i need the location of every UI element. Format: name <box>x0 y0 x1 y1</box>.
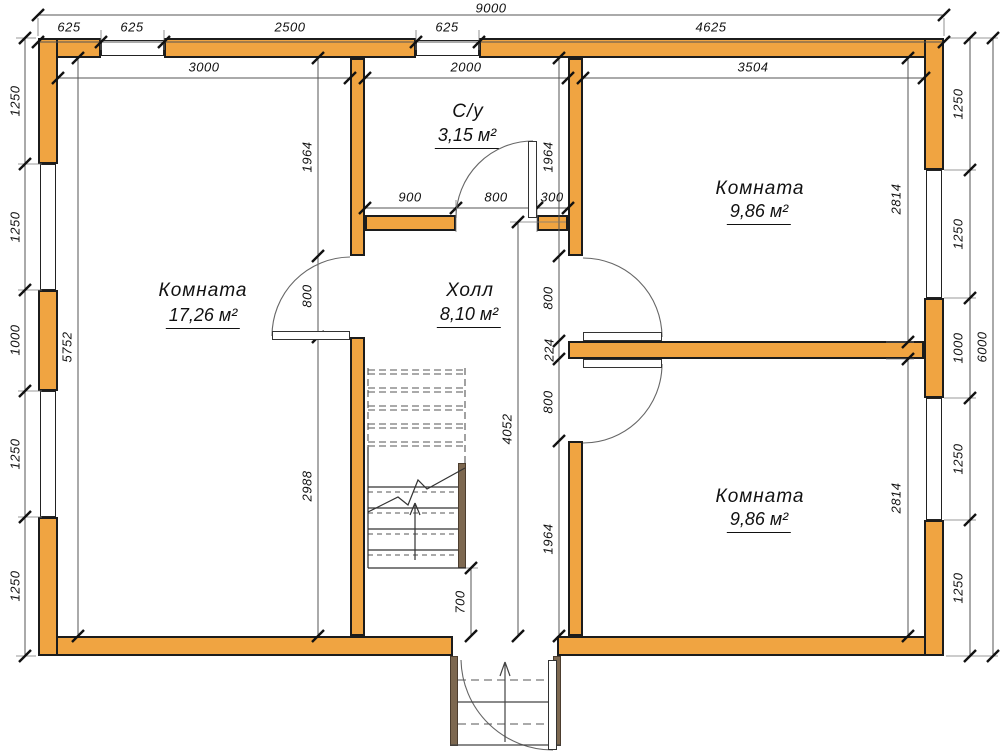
door-leaf-entrance <box>548 660 557 750</box>
door-arc-bottom-right-room <box>583 364 662 443</box>
dim-room-width: 3000 <box>189 60 220 75</box>
dim-rpart-chain: 800 <box>541 390 556 413</box>
dim-right-chain: 1250 <box>951 219 966 250</box>
plan-linework <box>0 0 1000 753</box>
dim-rpart-chain: 800 <box>541 286 556 309</box>
dim-top-chain: 625 <box>57 20 80 35</box>
room-name-hall: Холл <box>446 280 494 302</box>
room-area-left: 17,26 м² <box>166 305 240 329</box>
dim-top-chain: 2500 <box>275 20 306 35</box>
dim-left-chain: 1250 <box>8 86 23 117</box>
dim-rpart-chain: 1964 <box>541 142 556 173</box>
dim-left-chain: 1250 <box>8 212 23 243</box>
dim-stair-landing: 700 <box>453 590 468 613</box>
dim-left-chain: 1000 <box>8 325 23 356</box>
dim-top-chain: 4625 <box>696 20 727 35</box>
room-area-bottom-right: 9,86 м² <box>727 509 791 533</box>
dim-total-height: 6000 <box>975 332 990 363</box>
dim-lpart-chain: 1964 <box>300 142 315 173</box>
dim-total-width: 9000 <box>476 1 507 16</box>
dim-left-chain: 1250 <box>8 571 23 602</box>
dim-bathroom-chain: 900 <box>398 190 421 205</box>
door-arc-entrance <box>461 660 553 750</box>
dimension-lines <box>25 15 993 656</box>
door-arcs <box>272 141 662 750</box>
dim-top-chain: 625 <box>120 20 143 35</box>
dim-right-chain: 1250 <box>951 444 966 475</box>
dim-left-chain: 1250 <box>8 439 23 470</box>
porch-steps <box>450 662 561 745</box>
door-arc-bathroom <box>456 141 533 218</box>
dim-room-width: 2000 <box>451 60 482 75</box>
extension-lines <box>16 18 998 656</box>
room-name-bathroom: С/у <box>452 101 484 123</box>
door-leaf-top-right-room <box>583 332 662 341</box>
door-arc-top-right-room <box>583 258 662 337</box>
dim-right-room-height: 2814 <box>889 483 904 514</box>
dim-right-chain: 1250 <box>951 89 966 120</box>
dim-right-room-height: 2814 <box>889 184 904 215</box>
dim-right-chain: 1000 <box>951 333 966 364</box>
dim-rpart-chain: 224 <box>542 338 557 361</box>
room-name-left: Комната <box>159 280 248 302</box>
dim-rpart-chain: 1964 <box>541 524 556 555</box>
dim-hall-height: 4052 <box>500 414 515 445</box>
staircase <box>368 368 466 568</box>
dim-bathroom-chain: 800 <box>484 190 507 205</box>
dim-lpart-chain: 800 <box>300 284 315 307</box>
dim-right-chain: 1250 <box>951 573 966 604</box>
door-leaf-bottom-right-room <box>583 359 662 368</box>
door-leaf-left-room <box>272 331 350 340</box>
room-name-top-right: Комната <box>716 178 805 200</box>
floor-plan-canvas: Комната 17,26 м² Холл 8,10 м² С/у 3,15 м… <box>0 0 1000 753</box>
dim-lpart-chain: 2988 <box>300 471 315 502</box>
room-area-hall: 8,10 м² <box>437 304 501 328</box>
dim-room-width: 3504 <box>738 60 769 75</box>
dim-bathroom-chain: 300 <box>540 190 563 205</box>
room-name-bottom-right: Комната <box>716 486 805 508</box>
door-leaf-bathroom <box>528 141 537 218</box>
dimension-ticks <box>19 9 999 662</box>
room-area-bathroom: 3,15 м² <box>435 125 499 149</box>
room-area-top-right: 9,86 м² <box>727 201 791 225</box>
dim-left-room-height: 5752 <box>60 332 75 363</box>
dim-top-chain: 625 <box>435 20 458 35</box>
